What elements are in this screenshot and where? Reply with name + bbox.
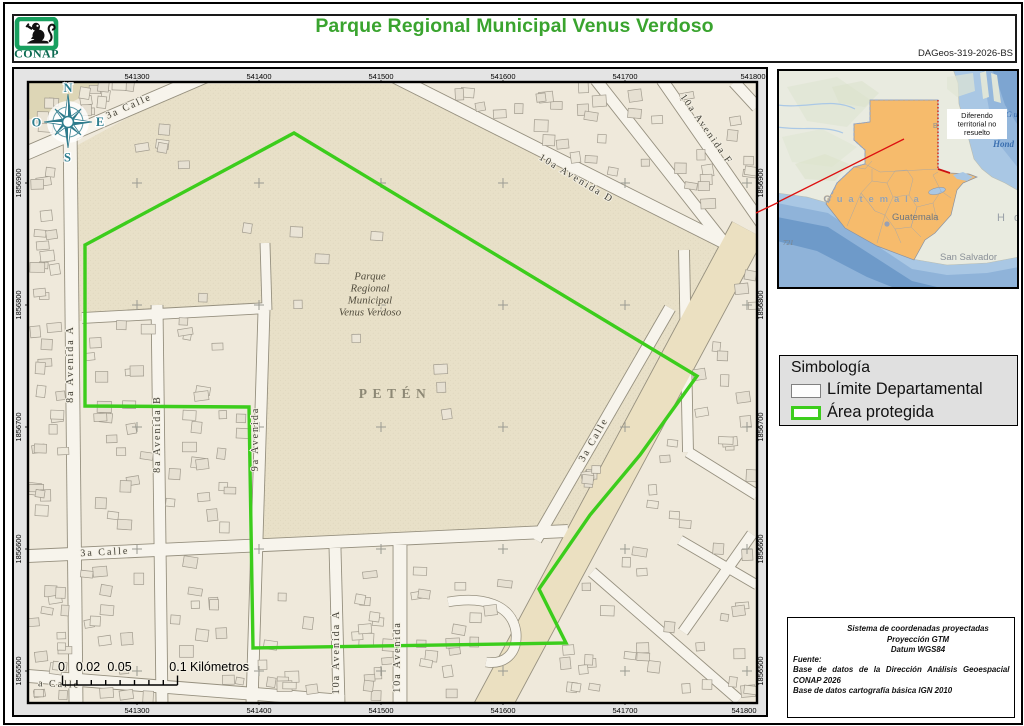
svg-text:B: B bbox=[933, 123, 938, 130]
svg-text:541300: 541300 bbox=[124, 72, 149, 81]
svg-text:O: O bbox=[32, 116, 42, 130]
svg-text:1856500: 1856500 bbox=[14, 656, 23, 685]
svg-text:S: S bbox=[64, 151, 71, 165]
svg-text:1856800: 1856800 bbox=[14, 290, 23, 319]
svg-text:8a Avenida A: 8a Avenida A bbox=[65, 325, 76, 403]
svg-text:1856700: 1856700 bbox=[14, 412, 23, 441]
svg-text:9a Avenida: 9a Avenida bbox=[250, 407, 261, 472]
svg-text:resuelto: resuelto bbox=[964, 128, 990, 137]
svg-text:N: N bbox=[63, 81, 72, 95]
svg-text:G u a t e m a l a: G u a t e m a l a bbox=[824, 194, 921, 205]
svg-text:E: E bbox=[96, 115, 104, 129]
svg-text:541400: 541400 bbox=[246, 706, 271, 715]
svg-text:541400: 541400 bbox=[246, 72, 271, 81]
svg-text:1856900: 1856900 bbox=[14, 168, 23, 197]
svg-text:Parque: Parque bbox=[353, 271, 386, 283]
svg-text:CONAP: CONAP bbox=[14, 47, 59, 61]
svg-text:1856600: 1856600 bbox=[14, 534, 23, 563]
svg-text:Guatemala: Guatemala bbox=[892, 212, 939, 223]
svg-text:Kilómetros: Kilómetros bbox=[190, 660, 249, 674]
svg-text:G u: G u bbox=[1006, 110, 1018, 119]
svg-text:Regional: Regional bbox=[350, 283, 390, 295]
svg-text:0: 0 bbox=[58, 660, 65, 674]
svg-text:541500: 541500 bbox=[368, 72, 393, 81]
svg-text:0.05: 0.05 bbox=[107, 660, 131, 674]
svg-text:H o: H o bbox=[997, 212, 1019, 224]
svg-text:Venus Verdoso: Venus Verdoso bbox=[339, 307, 402, 319]
svg-text:541700: 541700 bbox=[612, 72, 637, 81]
svg-text:8a Avenida B: 8a Avenida B bbox=[152, 395, 163, 473]
svg-text:PETÉN: PETÉN bbox=[359, 386, 432, 401]
svg-text:541600: 541600 bbox=[490, 72, 515, 81]
svg-text:10a Avenida A: 10a Avenida A bbox=[331, 610, 342, 695]
svg-text:Municipal: Municipal bbox=[347, 295, 392, 307]
svg-text:541600: 541600 bbox=[490, 706, 515, 715]
svg-text:541300: 541300 bbox=[124, 706, 149, 715]
svg-text:541800: 541800 bbox=[740, 72, 765, 81]
svg-text:541500: 541500 bbox=[368, 706, 393, 715]
svg-text:0.02: 0.02 bbox=[76, 660, 100, 674]
svg-text:541700: 541700 bbox=[612, 706, 637, 715]
svg-text:Hond: Hond bbox=[992, 139, 1015, 149]
svg-text:San Salvador: San Salvador bbox=[940, 252, 997, 263]
svg-text:0.1: 0.1 bbox=[169, 660, 186, 674]
svg-text:721: 721 bbox=[783, 239, 794, 247]
svg-text:10a Avenida: 10a Avenida bbox=[392, 621, 403, 693]
svg-text:541800: 541800 bbox=[731, 706, 756, 715]
